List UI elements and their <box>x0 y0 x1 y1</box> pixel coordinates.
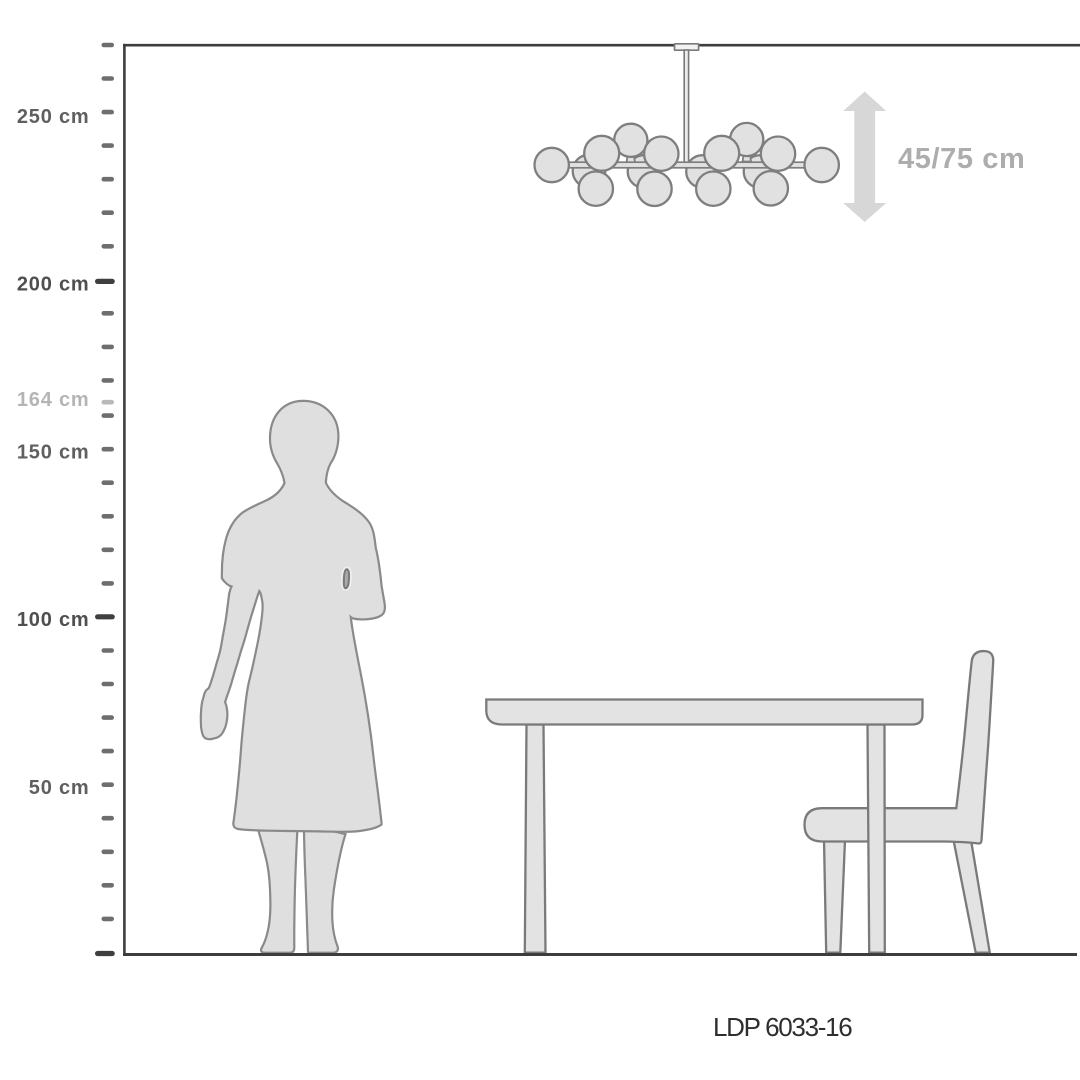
svg-text:150 cm: 150 cm <box>17 442 90 464</box>
svg-text:50 cm: 50 cm <box>29 777 90 799</box>
svg-text:45/75 cm: 45/75 cm <box>898 143 1025 175</box>
svg-text:250 cm: 250 cm <box>17 106 90 128</box>
svg-text:164 cm: 164 cm <box>17 389 90 411</box>
svg-text:100 cm: 100 cm <box>17 609 90 631</box>
svg-text:LDP 6033-16: LDP 6033-16 <box>713 1012 852 1042</box>
svg-text:200 cm: 200 cm <box>17 274 90 296</box>
